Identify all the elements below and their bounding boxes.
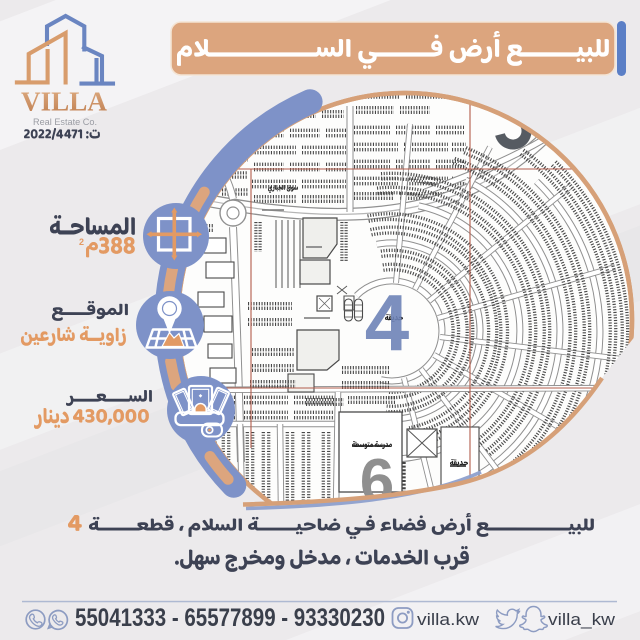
svg-text:VILLA: VILLA bbox=[21, 86, 107, 117]
svg-text:4: 4 bbox=[365, 278, 410, 367]
svg-text:villa.kw: villa.kw bbox=[417, 610, 480, 629]
svg-text:Real Estate Co.: Real Estate Co. bbox=[33, 117, 97, 128]
svg-text:villa_kw: villa_kw bbox=[548, 610, 616, 629]
svg-text:55041333 - 65577899 - 93330230: 55041333 - 65577899 - 93330230 bbox=[75, 604, 385, 632]
svg-text:2: 2 bbox=[79, 237, 84, 247]
